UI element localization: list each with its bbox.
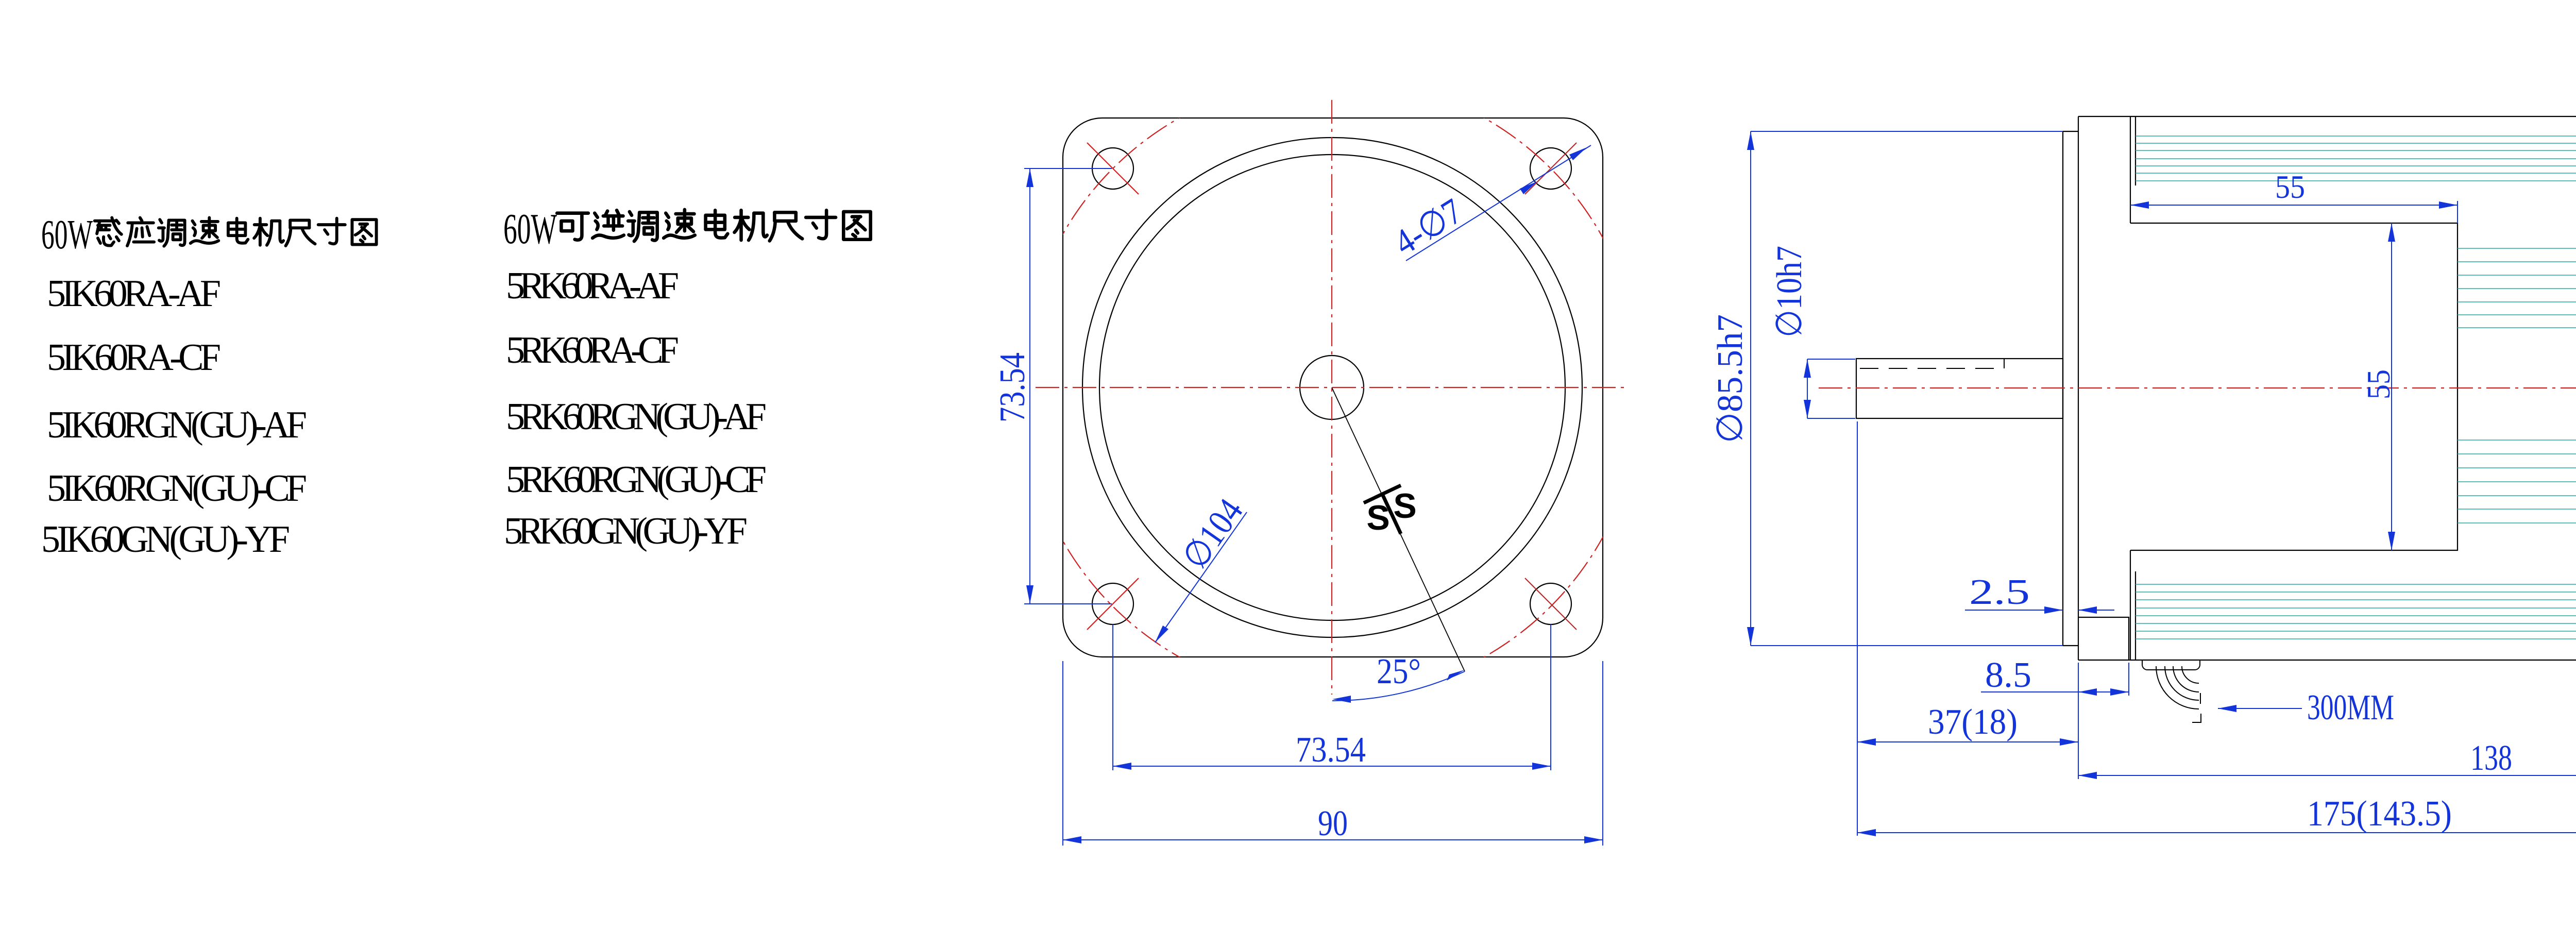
svg-text:∅10h7: ∅10h7 <box>1770 246 1809 337</box>
svg-text:∅85.5h7: ∅85.5h7 <box>1710 314 1750 443</box>
svg-text:8.5: 8.5 <box>1985 655 2031 695</box>
svg-text:5IK60RA-AF: 5IK60RA-AF <box>47 273 221 315</box>
svg-text:300MM: 300MM <box>2307 688 2394 728</box>
svg-text:90: 90 <box>1318 804 1348 843</box>
svg-text:5RK60RGN(GU)-AF: 5RK60RGN(GU)-AF <box>506 396 767 438</box>
svg-text:5IK60GN(GU)-YF: 5IK60GN(GU)-YF <box>41 518 290 561</box>
svg-text:5RK60GN(GU)-YF: 5RK60GN(GU)-YF <box>504 510 748 552</box>
svg-text:73.54: 73.54 <box>993 352 1032 423</box>
svg-text:37(18): 37(18) <box>1928 702 2018 742</box>
svg-text:55: 55 <box>2275 168 2305 205</box>
svg-text:60W: 60W <box>503 205 557 253</box>
svg-text:73.54: 73.54 <box>1296 730 1366 770</box>
svg-text:5IK60RA-CF: 5IK60RA-CF <box>47 336 221 379</box>
svg-text:5IK60RGN(GU)-CF: 5IK60RGN(GU)-CF <box>47 467 307 510</box>
svg-text:2.5: 2.5 <box>1969 572 2030 612</box>
svg-text:S: S <box>1366 498 1389 537</box>
svg-text:55: 55 <box>2360 369 2397 399</box>
svg-text:5IK60RGN(GU)-AF: 5IK60RGN(GU)-AF <box>47 404 307 446</box>
svg-text:138: 138 <box>2470 738 2512 778</box>
svg-text:S: S <box>1393 486 1416 526</box>
svg-text:60W: 60W <box>41 212 93 258</box>
svg-text:25°: 25° <box>1377 652 1421 691</box>
svg-text:5RK60RGN(GU)-CF: 5RK60RGN(GU)-CF <box>506 459 767 501</box>
svg-text:5RK60RA-AF: 5RK60RA-AF <box>506 265 679 307</box>
svg-text:5RK60RA-CF: 5RK60RA-CF <box>506 329 679 371</box>
svg-text:175(143.5): 175(143.5) <box>2307 794 2452 834</box>
